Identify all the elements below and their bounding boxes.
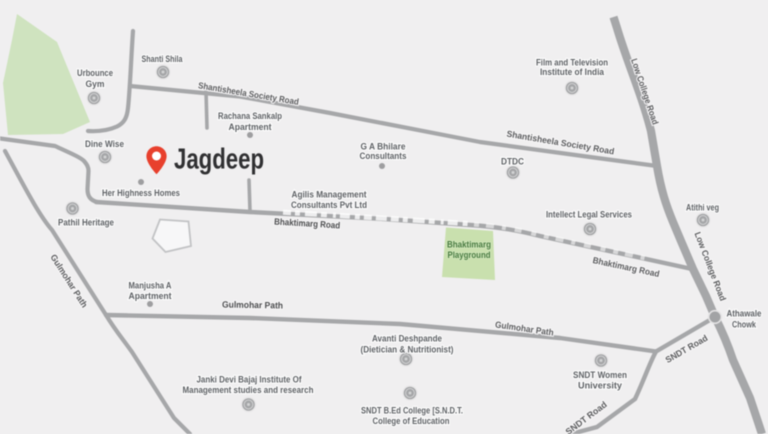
svg-text:Shanti Shila: Shanti Shila	[142, 54, 183, 64]
svg-text:SNDT B.Ed College [S.N.D.T.Col: SNDT B.Ed College [S.N.D.T.College of Ed…	[361, 406, 463, 427]
svg-text:Intellect Legal Services: Intellect Legal Services	[546, 210, 632, 220]
svg-text:Pathil Heritage: Pathil Heritage	[58, 218, 114, 228]
svg-text:Agilis ManagementConsultants P: Agilis ManagementConsultants Pvt Ltd	[291, 190, 367, 211]
svg-text:Her Highness Homes: Her Highness Homes	[102, 188, 180, 198]
svg-text:G A BhilareConsultants: G A BhilareConsultants	[360, 142, 407, 162]
svg-text:DTDC: DTDC	[501, 157, 525, 167]
svg-text:Gulmohar Path: Gulmohar Path	[222, 299, 283, 310]
svg-text:Film and TelevisionInstitute o: Film and TelevisionInstitute of India	[536, 58, 608, 78]
svg-text:Jagdeep: Jagdeep	[174, 144, 264, 176]
svg-text:Manjusha AApartment: Manjusha AApartment	[129, 281, 173, 302]
svg-text:Dine Wise: Dine Wise	[85, 139, 124, 149]
svg-text:Atithi veg: Atithi veg	[686, 203, 719, 213]
svg-text:Avanti Deshpande(Dietician & N: Avanti Deshpande(Dietician & Nutritionis…	[361, 334, 454, 355]
svg-text:SNDT WomenUniversity: SNDT WomenUniversity	[573, 370, 627, 391]
svg-text:Janki Devi Bajaj Institute OfM: Janki Devi Bajaj Institute OfManagement …	[183, 375, 314, 396]
svg-text:BhaktimargPlayground: BhaktimargPlayground	[447, 240, 491, 261]
